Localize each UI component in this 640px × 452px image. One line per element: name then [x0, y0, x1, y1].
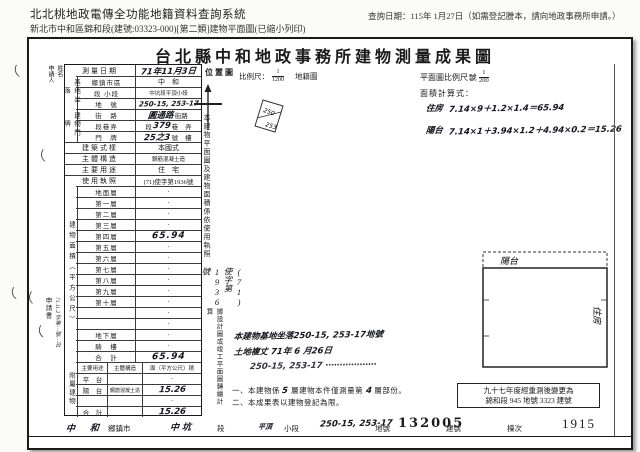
- section-row: 段 小段 中坑段平頂小段: [65, 87, 201, 98]
- balcony-formula-name: 陽台: [425, 124, 443, 136]
- footer-township-value: 中 和: [65, 421, 102, 435]
- footer-subsection-label: 小段: [284, 423, 299, 434]
- printed-note-1: 一、本建物係 5 層建物本件僅測量第 4 層部份。: [232, 385, 406, 396]
- application-label: 申請書: [42, 297, 52, 387]
- sketch-lot-label: 253: [264, 121, 277, 131]
- room-formula-value: 7.14×9＋1.2×1.4＝65.94: [448, 101, 565, 115]
- parcel-location-sketch: 250 253: [248, 95, 290, 137]
- annex-row: 平 台 ·: [65, 373, 201, 384]
- map-scale-label: 比例尺：: [239, 71, 269, 82]
- floor-value: ·: [136, 330, 201, 340]
- footer-section-value: 中坑: [169, 420, 194, 433]
- floor-value: ·: [136, 319, 201, 329]
- lane-row: 段巷弄 段 379 巷 弄: [65, 120, 201, 131]
- floor-row: 第二層·: [65, 208, 201, 219]
- floor-row: 第六層·: [65, 252, 201, 263]
- building-data-table: 測量日期 71年11月3日 鄉鎮市區 中 和 段 小段 中坑段平頂小段 地 號 …: [64, 64, 202, 416]
- annex-structure: [108, 374, 143, 384]
- footer-lot-label: 地號: [375, 423, 390, 434]
- footer-building-number-label: 建號: [446, 423, 461, 434]
- annex-area-header: 面（平方公尺）積: [143, 363, 201, 373]
- lot-value: 250-15, 253-17: [138, 99, 199, 108]
- floor-plan-drawing: 陽台 住房: [478, 248, 612, 372]
- lane-label: 段巷弄: [78, 121, 136, 131]
- area-group-label: 建物面積（平方公尺）: [65, 186, 76, 360]
- floor-label: 第四層: [78, 231, 136, 241]
- plan-source-license-handwriting: (71)使字第1936號: [200, 267, 244, 311]
- floor-value: ·: [136, 198, 201, 208]
- lot-row: 地 號 250-15, 253-17: [65, 98, 201, 109]
- floor-row: 地下層·: [65, 329, 201, 340]
- plan-scale: 平面圖比例尺： 1200: [420, 70, 489, 84]
- floor-total-value: 65.94: [151, 352, 186, 363]
- annex-area: ·: [143, 396, 201, 406]
- annex-use: 陽 台: [78, 385, 108, 395]
- map-scale: 比例尺： 11200 地籍圖: [239, 69, 318, 83]
- street-suffix: 街路: [175, 110, 188, 120]
- floor-row: 第五層·: [65, 241, 201, 252]
- floor-row: 第九層·: [65, 285, 201, 296]
- style-row: 建築式樣 本國式: [65, 142, 201, 153]
- floor-value: ·: [136, 308, 201, 318]
- survey-date-value: 71年11月3日: [140, 64, 196, 77]
- floor-4f-area-value: 65.94: [151, 231, 186, 242]
- plan-room-label: 住房: [591, 306, 602, 325]
- land-resurvey-date-note: 土地複丈 71年 6 月26日: [233, 344, 332, 358]
- lot-label: 地 號: [78, 99, 136, 109]
- site-lot-handwritten-note: 本建物基地坐落250-15, 253-17地號: [233, 328, 383, 343]
- plan-scale-fraction: 1200: [479, 70, 489, 84]
- footer-divider-line: [29, 436, 631, 437]
- floor-row: 第一層·: [65, 197, 201, 208]
- site-group-label: 基地坐落: [65, 76, 76, 107]
- resurvey-remark-line1: 九十七年度經重測後變更為: [460, 386, 597, 396]
- footer-block-label: 棟次: [507, 423, 522, 434]
- annex-group-label: 附屬建物: [65, 362, 76, 415]
- footer-subsection-value: 平頂: [257, 422, 272, 432]
- room-area-formula: 住房 7.14×9＋1.2×1.4＝65.94: [426, 102, 564, 114]
- floor-value: ·: [136, 286, 201, 296]
- annex-total-value: 15.26: [158, 407, 186, 417]
- floor-row: ·: [65, 307, 201, 318]
- floor-row-4f: 第四層65.94: [65, 230, 201, 241]
- annex-use: [78, 396, 108, 406]
- application-receipt-stamp: 申請書 71.11.2 字第⋯號⋯日: [42, 297, 66, 387]
- annex-structure: [108, 396, 143, 406]
- printed-note-2: 二、本成果表以建物登記為限。: [232, 397, 344, 408]
- district-row: 鄉鎮市區 中 和: [65, 76, 201, 87]
- floor-value: ·: [136, 297, 201, 307]
- floor-row: 第三層·: [65, 219, 201, 230]
- balcony-area-formula: 陽台 7.14×1＋3.94×1.2＋4.94×0.2＝15.26: [426, 124, 622, 136]
- resurvey-remark-line2: 錦和段 945 地號 3323 建號: [460, 396, 597, 406]
- street-label: 街 路: [78, 110, 136, 120]
- resurvey-remark-box: 九十七年度經重測後變更為 錦和段 945 地號 3323 建號: [457, 383, 600, 408]
- scan-artifact-mark: （: [19, 287, 34, 307]
- floor-row: 地面層·: [65, 186, 201, 197]
- annex-row-balcony: 陽 台 鋼筋混凝土造 15.26: [65, 384, 201, 395]
- lane-prefix: 段: [145, 121, 152, 131]
- building-storeys-handwriting: 5: [282, 386, 289, 396]
- right-column-line: [614, 64, 615, 436]
- survey-date-label: 測量日期: [65, 65, 136, 76]
- floor-label: 第十層: [78, 297, 136, 307]
- house-number-mid: 號: [172, 132, 179, 142]
- applicant-label: 申請人: [46, 65, 54, 93]
- district-label: 鄉鎮市區: [78, 77, 136, 87]
- lane-mid: 巷: [172, 121, 179, 131]
- floor-value: ·: [136, 242, 201, 252]
- floor-label: [78, 308, 136, 318]
- license-value: (71)使字第1936號: [136, 176, 201, 186]
- annex-structure: 鋼筋混凝土造: [108, 385, 143, 395]
- annex-structure-header: 主體構造: [108, 363, 143, 373]
- footer-township-label: 鄉鎮市: [108, 423, 131, 434]
- scan-artifact-mark: （: [1, 283, 18, 304]
- floor-row: 第八層·: [65, 274, 201, 285]
- house-number-value: 25之3: [144, 131, 172, 143]
- usage-label: 主要用途: [65, 165, 136, 175]
- house-number-label: 門 牌: [78, 132, 136, 142]
- license-label: 使用執照: [65, 176, 136, 186]
- lane-suffix: 弄: [185, 121, 192, 131]
- house-number-row: 門 牌 25之3 號 樓: [65, 131, 201, 142]
- balcony-area-value: 15.26: [158, 385, 186, 395]
- section-label: 段 小段: [78, 88, 136, 98]
- map-scale-fraction: 11200: [272, 69, 284, 83]
- plan-source-note: 本建物平面圖及建物面積係依使用執照: [202, 114, 212, 266]
- floor-value: ·: [136, 253, 201, 263]
- document-subtitle: 新北市中和區錦和段(建號:03323-000)[第二類]建物平面圖(已縮小列印): [30, 22, 305, 35]
- floor-total-row: 合 計65.94: [65, 351, 201, 362]
- floor-total-label: 合 計: [78, 352, 136, 362]
- structure-row: 主體構造 鋼筋混凝土造: [65, 153, 201, 164]
- floor-value: ·: [136, 209, 201, 219]
- annex-header-row: 主要用途 主體構造 面（平方公尺）積: [65, 362, 201, 373]
- survey-result-form: 台北縣中和地政事務所建物測量成果圖 申請人 姓名 申請書 71.11.2 字第⋯…: [27, 37, 633, 450]
- usage-row: 主要用途 住 宅: [65, 164, 201, 175]
- footer-section-label: 段: [217, 423, 225, 434]
- annex-use: 平 台: [78, 374, 108, 384]
- address-group-label: 建物門牌: [65, 109, 76, 140]
- floor-value: ·: [136, 275, 201, 285]
- scan-artifact-mark: （: [31, 145, 47, 166]
- usage-value: 住 宅: [136, 165, 201, 175]
- style-value: 本國式: [136, 143, 201, 153]
- floor-label: [78, 319, 136, 329]
- measured-floor-handwriting: 4: [365, 386, 372, 396]
- structure-label: 主體構造: [65, 154, 136, 164]
- floor-label: 地面層: [78, 187, 136, 197]
- floor-label: 第七層: [78, 264, 136, 274]
- floor-label: 第三層: [78, 220, 136, 230]
- floor-label: 地下層: [78, 330, 136, 340]
- annex-total-label: 合 計: [78, 407, 108, 417]
- scan-artifact-mark: （: [4, 61, 21, 83]
- balcony-formula-value: 7.14×1＋3.94×1.2＋4.94×0.2＝15.26: [448, 122, 622, 137]
- plan-trace-note: 據設計圖或竣工平面圖轉繪計算: [203, 308, 223, 410]
- floor-row: 騎 樓·: [65, 340, 201, 351]
- floor-value: ·: [136, 220, 201, 230]
- cadastral-map-label: 地籍圖: [295, 71, 318, 82]
- lane-value: 379: [152, 121, 171, 131]
- floor-row: ·: [65, 318, 201, 329]
- floor-label: 第八層: [78, 275, 136, 285]
- floor-label: 第五層: [78, 242, 136, 252]
- floor-row: 第七層·: [65, 263, 201, 274]
- survey-date-row: 測量日期 71年11月3日: [65, 65, 201, 76]
- house-number-suffix: 樓: [185, 132, 192, 142]
- street-value: 圓通路: [148, 109, 175, 121]
- footer-page-number: 1915: [562, 416, 596, 432]
- style-label: 建築式樣: [65, 143, 136, 153]
- floor-value: ·: [136, 341, 201, 351]
- floor-label: 第九層: [78, 286, 136, 296]
- area-formula-label: 面積計算式：: [420, 88, 474, 99]
- annex-area: ·: [143, 374, 201, 384]
- floor-value: ·: [136, 264, 201, 274]
- annex-use-header: 主要用途: [78, 363, 108, 373]
- floor-label: 騎 樓: [78, 341, 136, 351]
- floor-value: ·: [136, 187, 201, 197]
- floor-row: 第十層·: [65, 296, 201, 307]
- application-receipt-handwriting: 71.11.2 字第⋯號⋯日: [53, 297, 61, 387]
- location-map-label: 位置圖: [205, 67, 235, 78]
- structure-value: 鋼筋混凝土造: [136, 154, 201, 164]
- lot-scribble-note: 250-15, 253-17 ⋯⋯⋯⋯⋯⋯: [249, 360, 377, 372]
- floor-label: 第六層: [78, 253, 136, 263]
- annex-total-row: 合 計 15.26: [65, 406, 201, 417]
- floor-label: 第一層: [78, 198, 136, 208]
- system-title: 北北桃地政電傳全功能地籍資料查詢系統: [30, 6, 246, 22]
- plan-balcony-label: 陽台: [500, 256, 519, 267]
- registry-printout-page: 北北桃地政電傳全功能地籍資料查詢系統 查詢日期：115年 1月27日（如需登記謄…: [0, 0, 640, 452]
- room-formula-name: 住房: [425, 102, 443, 114]
- license-row: 使用執照 (71)使字第1936號: [65, 175, 201, 186]
- query-date: 查詢日期：115年 1月27日（如需登記謄本，請向地政事務所申請。）: [368, 10, 621, 22]
- plan-scale-label: 平面圖比例尺：: [420, 72, 476, 83]
- street-row: 街 路 圓通路 街路: [65, 109, 201, 120]
- annex-row: ·: [65, 395, 201, 406]
- floor-label: 第二層: [78, 209, 136, 219]
